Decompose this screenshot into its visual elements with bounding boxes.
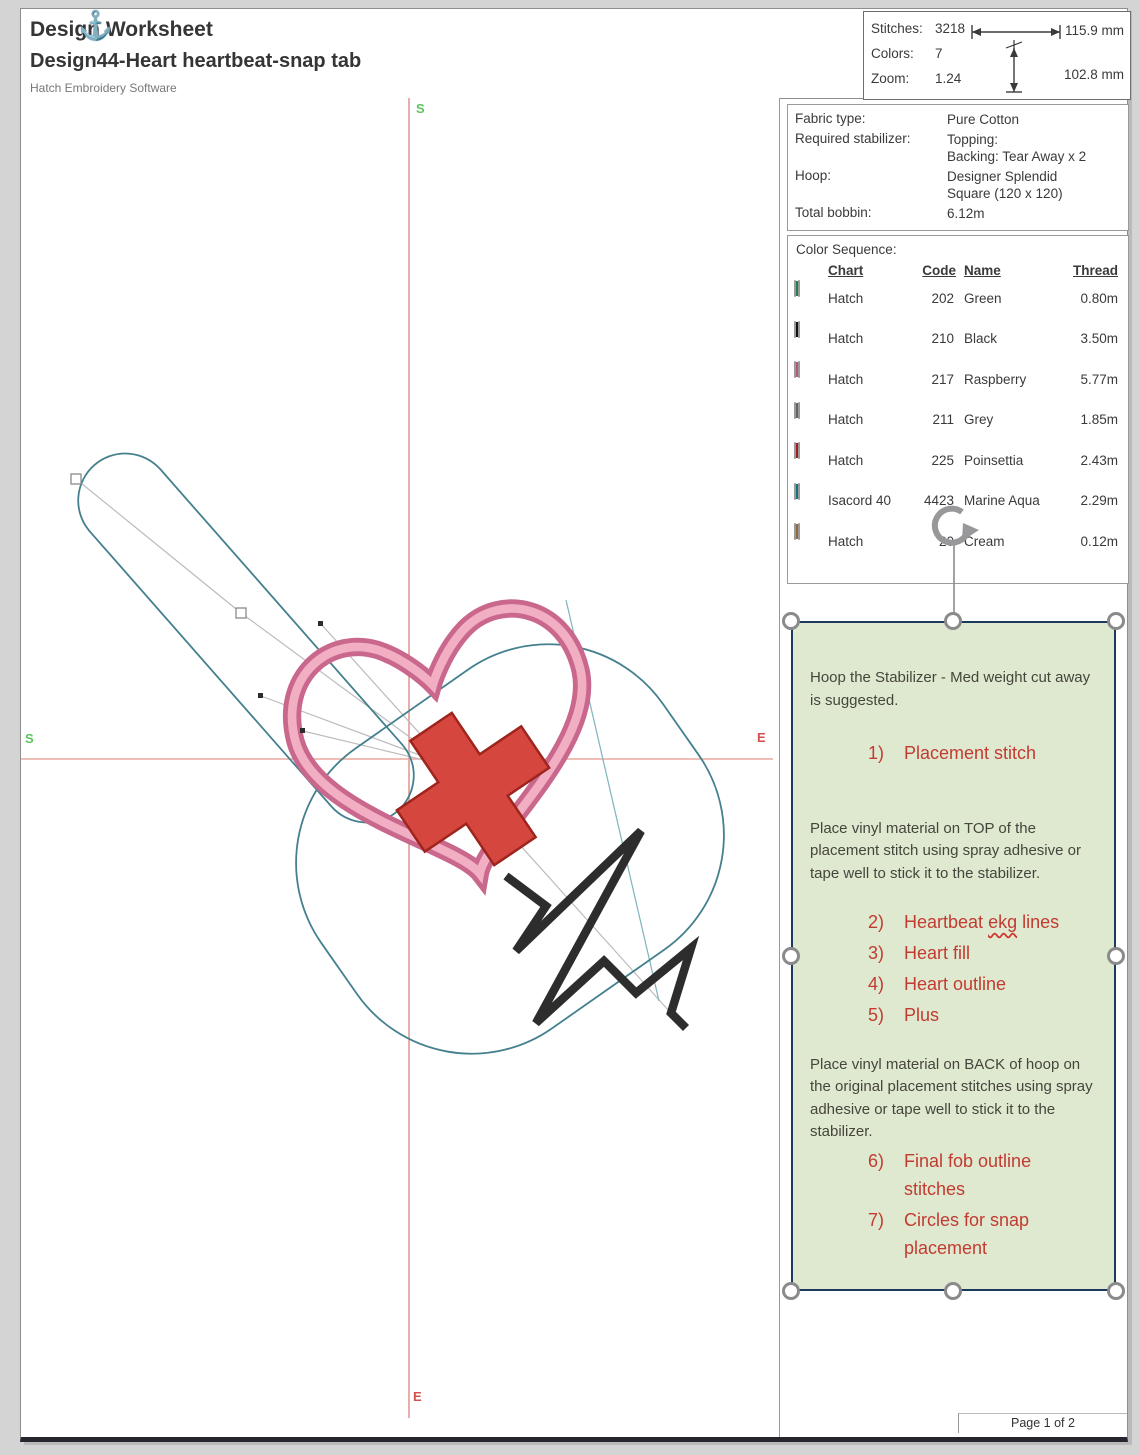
step-text: Placement stitch: [904, 740, 1036, 768]
thread-length: 5.77m: [1062, 372, 1118, 387]
selection-handle-bottom-left[interactable]: [782, 1282, 800, 1300]
step-text: Heart outline: [904, 971, 1006, 999]
thread-length: 3.50m: [1062, 331, 1118, 346]
end-label-bottom: E: [413, 1389, 422, 1404]
anchor-icon: ⚓: [78, 9, 113, 42]
instruction-step: 7) Circles for snap placement: [810, 1207, 1098, 1263]
misspelled-word: ekg: [988, 912, 1017, 932]
selection-handle-mid-left[interactable]: [782, 947, 800, 965]
info-value: 6.12m: [947, 205, 1122, 223]
thread-spool-icon: [794, 362, 818, 396]
selection-handle-mid-right[interactable]: [1107, 947, 1125, 965]
color-sequence-header: Chart Code Name Thread: [788, 263, 1128, 278]
info-label: Fabric type:: [795, 111, 947, 129]
design-stats-box: Stitches: 3218 Colors: 7 Zoom: 1.24: [863, 11, 1131, 100]
software-label: Hatch Embroidery Software: [30, 81, 177, 95]
colors-label: Colors:: [871, 46, 935, 61]
page-title: Design Worksheet: [30, 18, 213, 42]
instruction-step: 3) Heart fill: [810, 940, 1098, 968]
thread-spool-icon: [794, 484, 818, 518]
thread-name: Green: [956, 291, 1062, 306]
fabric-info-table: Fabric type: Pure Cotton Required stabil…: [787, 104, 1129, 231]
info-value: Topping:Backing: Tear Away x 2: [947, 131, 1122, 166]
info-label: Total bobbin:: [795, 205, 947, 223]
design-width-value: 115.9 mm: [1065, 23, 1124, 38]
thread-name: Grey: [956, 412, 1062, 427]
step-text: Final fob outline stitches: [904, 1148, 1094, 1204]
color-sequence-row: Hatch 210 Black 3.50m: [788, 319, 1128, 360]
thread-spool-icon: [794, 403, 818, 437]
info-row: Fabric type: Pure Cotton: [795, 111, 1122, 129]
selection-handle-top-center[interactable]: [944, 612, 962, 630]
step-number: 4): [868, 971, 904, 999]
thread-chart: Hatch: [828, 534, 912, 549]
info-value: Pure Cotton: [947, 111, 1122, 129]
selection-handle-top-right[interactable]: [1107, 612, 1125, 630]
thread-chart: Hatch: [828, 453, 912, 468]
thread-name: Black: [956, 331, 1062, 346]
info-label: Hoop:: [795, 168, 947, 203]
thread-chart: Hatch: [828, 291, 912, 306]
thread-spool-icon: [794, 524, 818, 558]
info-row: Total bobbin: 6.12m: [795, 205, 1122, 223]
instructions-content: Hoop the Stabilizer - Med weight cut awa…: [793, 623, 1114, 1282]
stitches-label: Stitches:: [871, 21, 935, 36]
zoom-value: 1.24: [935, 71, 961, 86]
thread-length: 1.85m: [1062, 412, 1118, 427]
instructions-textbox[interactable]: Hoop the Stabilizer - Med weight cut awa…: [791, 621, 1116, 1291]
thread-spool-icon: [794, 322, 818, 356]
thread-chart: Hatch: [828, 412, 912, 427]
thread-spool-icon: [794, 443, 818, 477]
thread-chart: Hatch: [828, 372, 912, 387]
header-code: Code: [912, 263, 956, 278]
thread-length: 2.43m: [1062, 453, 1118, 468]
step-number: 3): [868, 940, 904, 968]
step-number: 1): [868, 740, 904, 768]
step-number: 5): [868, 1002, 904, 1030]
thread-length: 2.29m: [1062, 493, 1118, 508]
step-number: 7): [868, 1207, 904, 1263]
color-sequence-title: Color Sequence:: [788, 236, 1128, 259]
step-text: Heartbeat ekg lines: [904, 909, 1059, 937]
thread-length: 0.80m: [1062, 291, 1118, 306]
zoom-label: Zoom:: [871, 71, 935, 86]
colors-value: 7: [935, 46, 943, 61]
design-name: Design44-Heart heartbeat-snap tab: [30, 50, 361, 73]
instruction-step: 4) Heart outline: [810, 971, 1098, 999]
step-text: Heart fill: [904, 940, 970, 968]
embroidery-design-preview: [21, 98, 779, 1437]
info-label: Required stabilizer:: [795, 131, 947, 166]
instruction-paragraph: Place vinyl material on TOP of the place…: [810, 818, 1098, 886]
info-row: Required stabilizer: Topping:Backing: Te…: [795, 131, 1122, 166]
selection-handle-bottom-center[interactable]: [944, 1282, 962, 1300]
thread-chart: Isacord 40: [828, 493, 912, 508]
header-thread: Thread: [1062, 263, 1118, 278]
thread-code: 210: [912, 331, 956, 346]
stitches-value: 3218: [935, 21, 965, 36]
thread-code: 217: [912, 372, 956, 387]
worksheet-page: Design Worksheet ⚓ Design44-Heart heartb…: [20, 8, 1128, 1442]
thread-chart: Hatch: [828, 331, 912, 346]
color-sequence-row: Hatch 202 Green 0.80m: [788, 278, 1128, 319]
color-sequence-row: Hatch 225 Poinsettia 2.43m: [788, 440, 1128, 481]
thread-spool-icon: [794, 281, 818, 315]
color-sequence-row: Hatch 217 Raspberry 5.77m: [788, 359, 1128, 400]
start-label-top: S: [416, 101, 425, 116]
header-chart: Chart: [828, 263, 912, 278]
thread-length: 0.12m: [1062, 534, 1118, 549]
end-label-right: E: [757, 730, 766, 745]
start-label-left: S: [25, 731, 34, 746]
step-text: Plus: [904, 1002, 939, 1030]
instruction-step: 2) Heartbeat ekg lines: [810, 909, 1098, 937]
step-text: Circles for snap placement: [904, 1207, 1094, 1263]
thread-code: 202: [912, 291, 956, 306]
instruction-step: 1) Placement stitch: [810, 740, 1098, 768]
instruction-paragraph: Hoop the Stabilizer - Med weight cut awa…: [810, 667, 1098, 712]
instruction-step: 6) Final fob outline stitches: [810, 1148, 1098, 1204]
header-name: Name: [956, 263, 1062, 278]
design-height-value: 102.8 mm: [1064, 67, 1124, 82]
selection-handle-bottom-right[interactable]: [1107, 1282, 1125, 1300]
info-table: Fabric type: Pure Cotton Required stabil…: [795, 111, 1122, 222]
jump-stitch-lines: [76, 479, 669, 1011]
thread-name: Raspberry: [956, 372, 1062, 387]
color-sequence-row: Hatch 211 Grey 1.85m: [788, 400, 1128, 441]
page-number: Page 1 of 2: [958, 1413, 1127, 1433]
width-arrow-icon: [972, 25, 1060, 39]
thread-code: 211: [912, 412, 956, 427]
step-number: 2): [868, 909, 904, 937]
step-number: 6): [868, 1148, 904, 1204]
thread-name: Poinsettia: [956, 453, 1062, 468]
info-row: Hoop: Designer SplendidSquare (120 x 120…: [795, 168, 1122, 203]
instruction-step: 5) Plus: [810, 1002, 1098, 1030]
info-value: Designer SplendidSquare (120 x 120): [947, 168, 1122, 203]
instruction-paragraph: Place vinyl material on BACK of hoop on …: [810, 1054, 1098, 1144]
object-nodes: [71, 474, 323, 733]
thread-code: 225: [912, 453, 956, 468]
selection-handle-top-left[interactable]: [782, 612, 800, 630]
design-canvas[interactable]: S S E E: [21, 98, 780, 1437]
rotate-handle-icon[interactable]: [927, 501, 981, 625]
